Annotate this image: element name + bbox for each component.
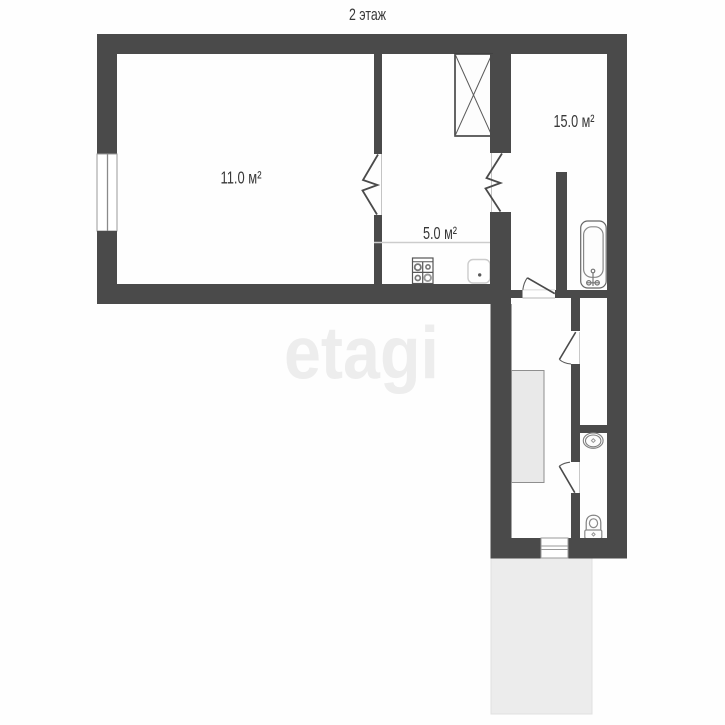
svg-text:etagi: etagi (284, 312, 439, 395)
svg-text:2 этаж: 2 этаж (349, 5, 386, 24)
svg-text:5.0 м²: 5.0 м² (423, 223, 457, 243)
svg-text:11.0 м²: 11.0 м² (221, 168, 262, 188)
svg-text:15.0 м²: 15.0 м² (554, 111, 595, 131)
